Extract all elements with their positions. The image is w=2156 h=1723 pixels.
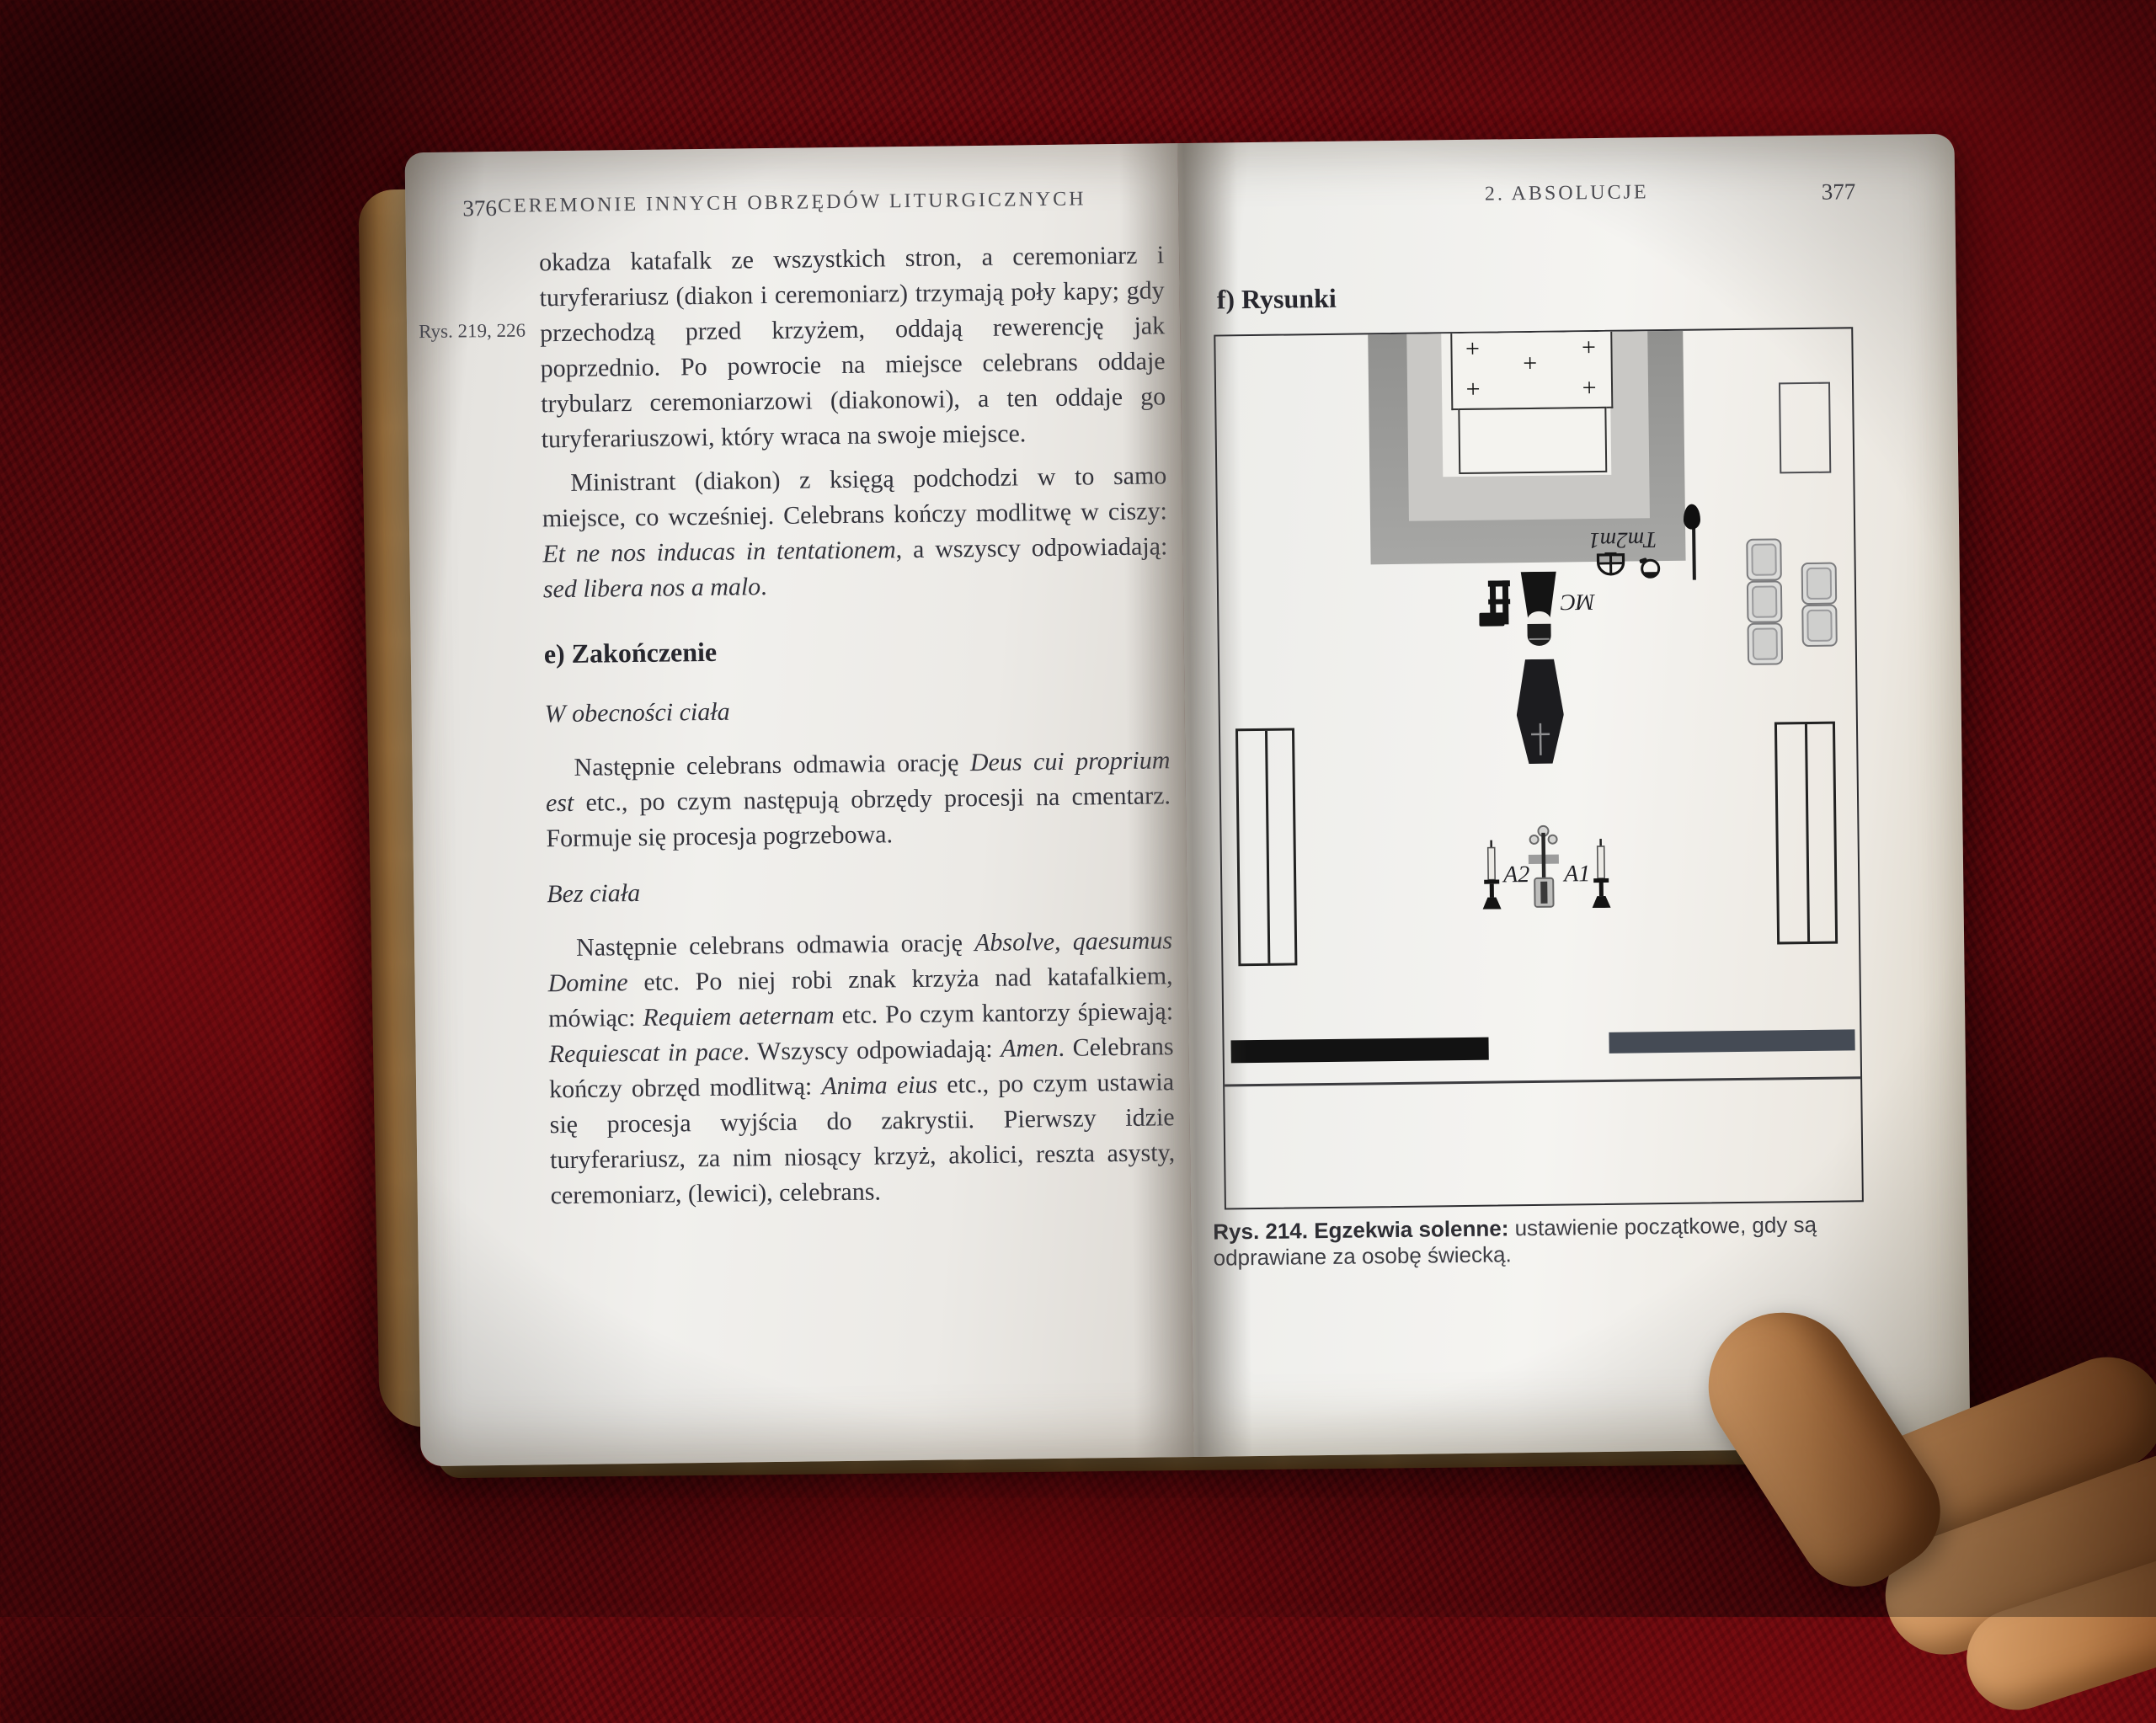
left-running-header: CEREMONIE INNYCH OBRZĘDÓW LITURGICZNYCH (405, 187, 1178, 219)
paragraph: Następnie celebrans odmawia orację Deus … (545, 743, 1171, 856)
thurifer-and-ministers-label: Tm2m1 (1588, 526, 1657, 553)
pews-right (1774, 722, 1838, 945)
paragraph: Ministrant (diakon) z księgą podchodzi w… (542, 458, 1168, 607)
altar-candle-cross-icon: + (1464, 337, 1481, 362)
right-page-number: 377 (1822, 179, 1856, 205)
credence-table (1779, 382, 1831, 474)
right-page: 2. ABSOLUCJE 377 f) Rysunki + + + + + Tm… (1177, 134, 1970, 1457)
nave-boundary-line (1225, 1076, 1860, 1086)
sedilia-seat (1801, 605, 1838, 648)
ring-finger (1954, 1541, 2156, 1723)
aspergillum-head-icon (1684, 504, 1700, 530)
aspergillum-icon (1692, 523, 1695, 580)
paragraph: Następnie celebrans odmawia orację Absol… (547, 923, 1176, 1214)
open-book: 376 CEREMONIE INNYCH OBRZĘDÓW LITURGICZN… (405, 134, 1971, 1466)
sedilia-seat (1801, 563, 1838, 605)
figures-section-heading: f) Rysunki (1217, 283, 1337, 316)
sedilia-seat (1747, 580, 1783, 623)
sedilia-seat (1747, 622, 1783, 665)
sedilia-seat (1746, 538, 1782, 581)
altar-candle-cross-icon: + (1465, 377, 1481, 403)
altar-body (1458, 407, 1607, 474)
paragraph: okadza katafalk ze wszystkich stron, a c… (539, 237, 1166, 457)
figure-caption: Rys. 214. Egzekwia solenne: ustawienie p… (1213, 1211, 1896, 1272)
pews-left (1235, 728, 1297, 966)
acolyte-2-label: A2 (1503, 861, 1529, 888)
altar-mensa: + + + + + (1450, 332, 1613, 410)
left-page: 376 CEREMONIE INNYCH OBRZĘDÓW LITURGICZN… (405, 143, 1194, 1466)
section-heading: e) Zakończenie (544, 628, 1169, 671)
celebrant-in-cope-icon (1518, 572, 1561, 650)
subheading-with-body: W obecności ciała (544, 689, 1169, 732)
communion-rail-left (1230, 1038, 1488, 1064)
incense-boat-icon (1639, 556, 1662, 579)
acolyte-1-label: A1 (1564, 861, 1590, 888)
acolyte-candle-icon (1481, 840, 1502, 909)
communion-rail-right (1609, 1029, 1854, 1054)
altar-cross-icon: + (1522, 351, 1539, 376)
master-of-ceremonies-label: MC (1561, 589, 1595, 615)
left-page-text-column: okadza katafalk ze wszystkich stron, a c… (539, 237, 1176, 1214)
altar-candle-cross-icon: + (1580, 335, 1597, 360)
hand-shadow (1962, 1314, 2156, 1667)
altar-candle-cross-icon: + (1581, 376, 1598, 401)
lectern-icon (1479, 579, 1518, 630)
church-floor-plan: + + + + + Tm2m1 (1214, 327, 1864, 1209)
middle-finger (1869, 1437, 2156, 1672)
margin-note: Rys. 219, 226 (419, 319, 532, 343)
coffin-catafalque-icon (1516, 659, 1565, 765)
subheading-without-body: Bez ciała (547, 869, 1171, 912)
figure-caption-lead: Rys. 214. Egzekwia solenne: (1213, 1215, 1508, 1244)
thurible-icon (1594, 552, 1626, 578)
acolyte-candle-icon (1591, 839, 1612, 908)
processional-cross-icon (1526, 824, 1561, 910)
